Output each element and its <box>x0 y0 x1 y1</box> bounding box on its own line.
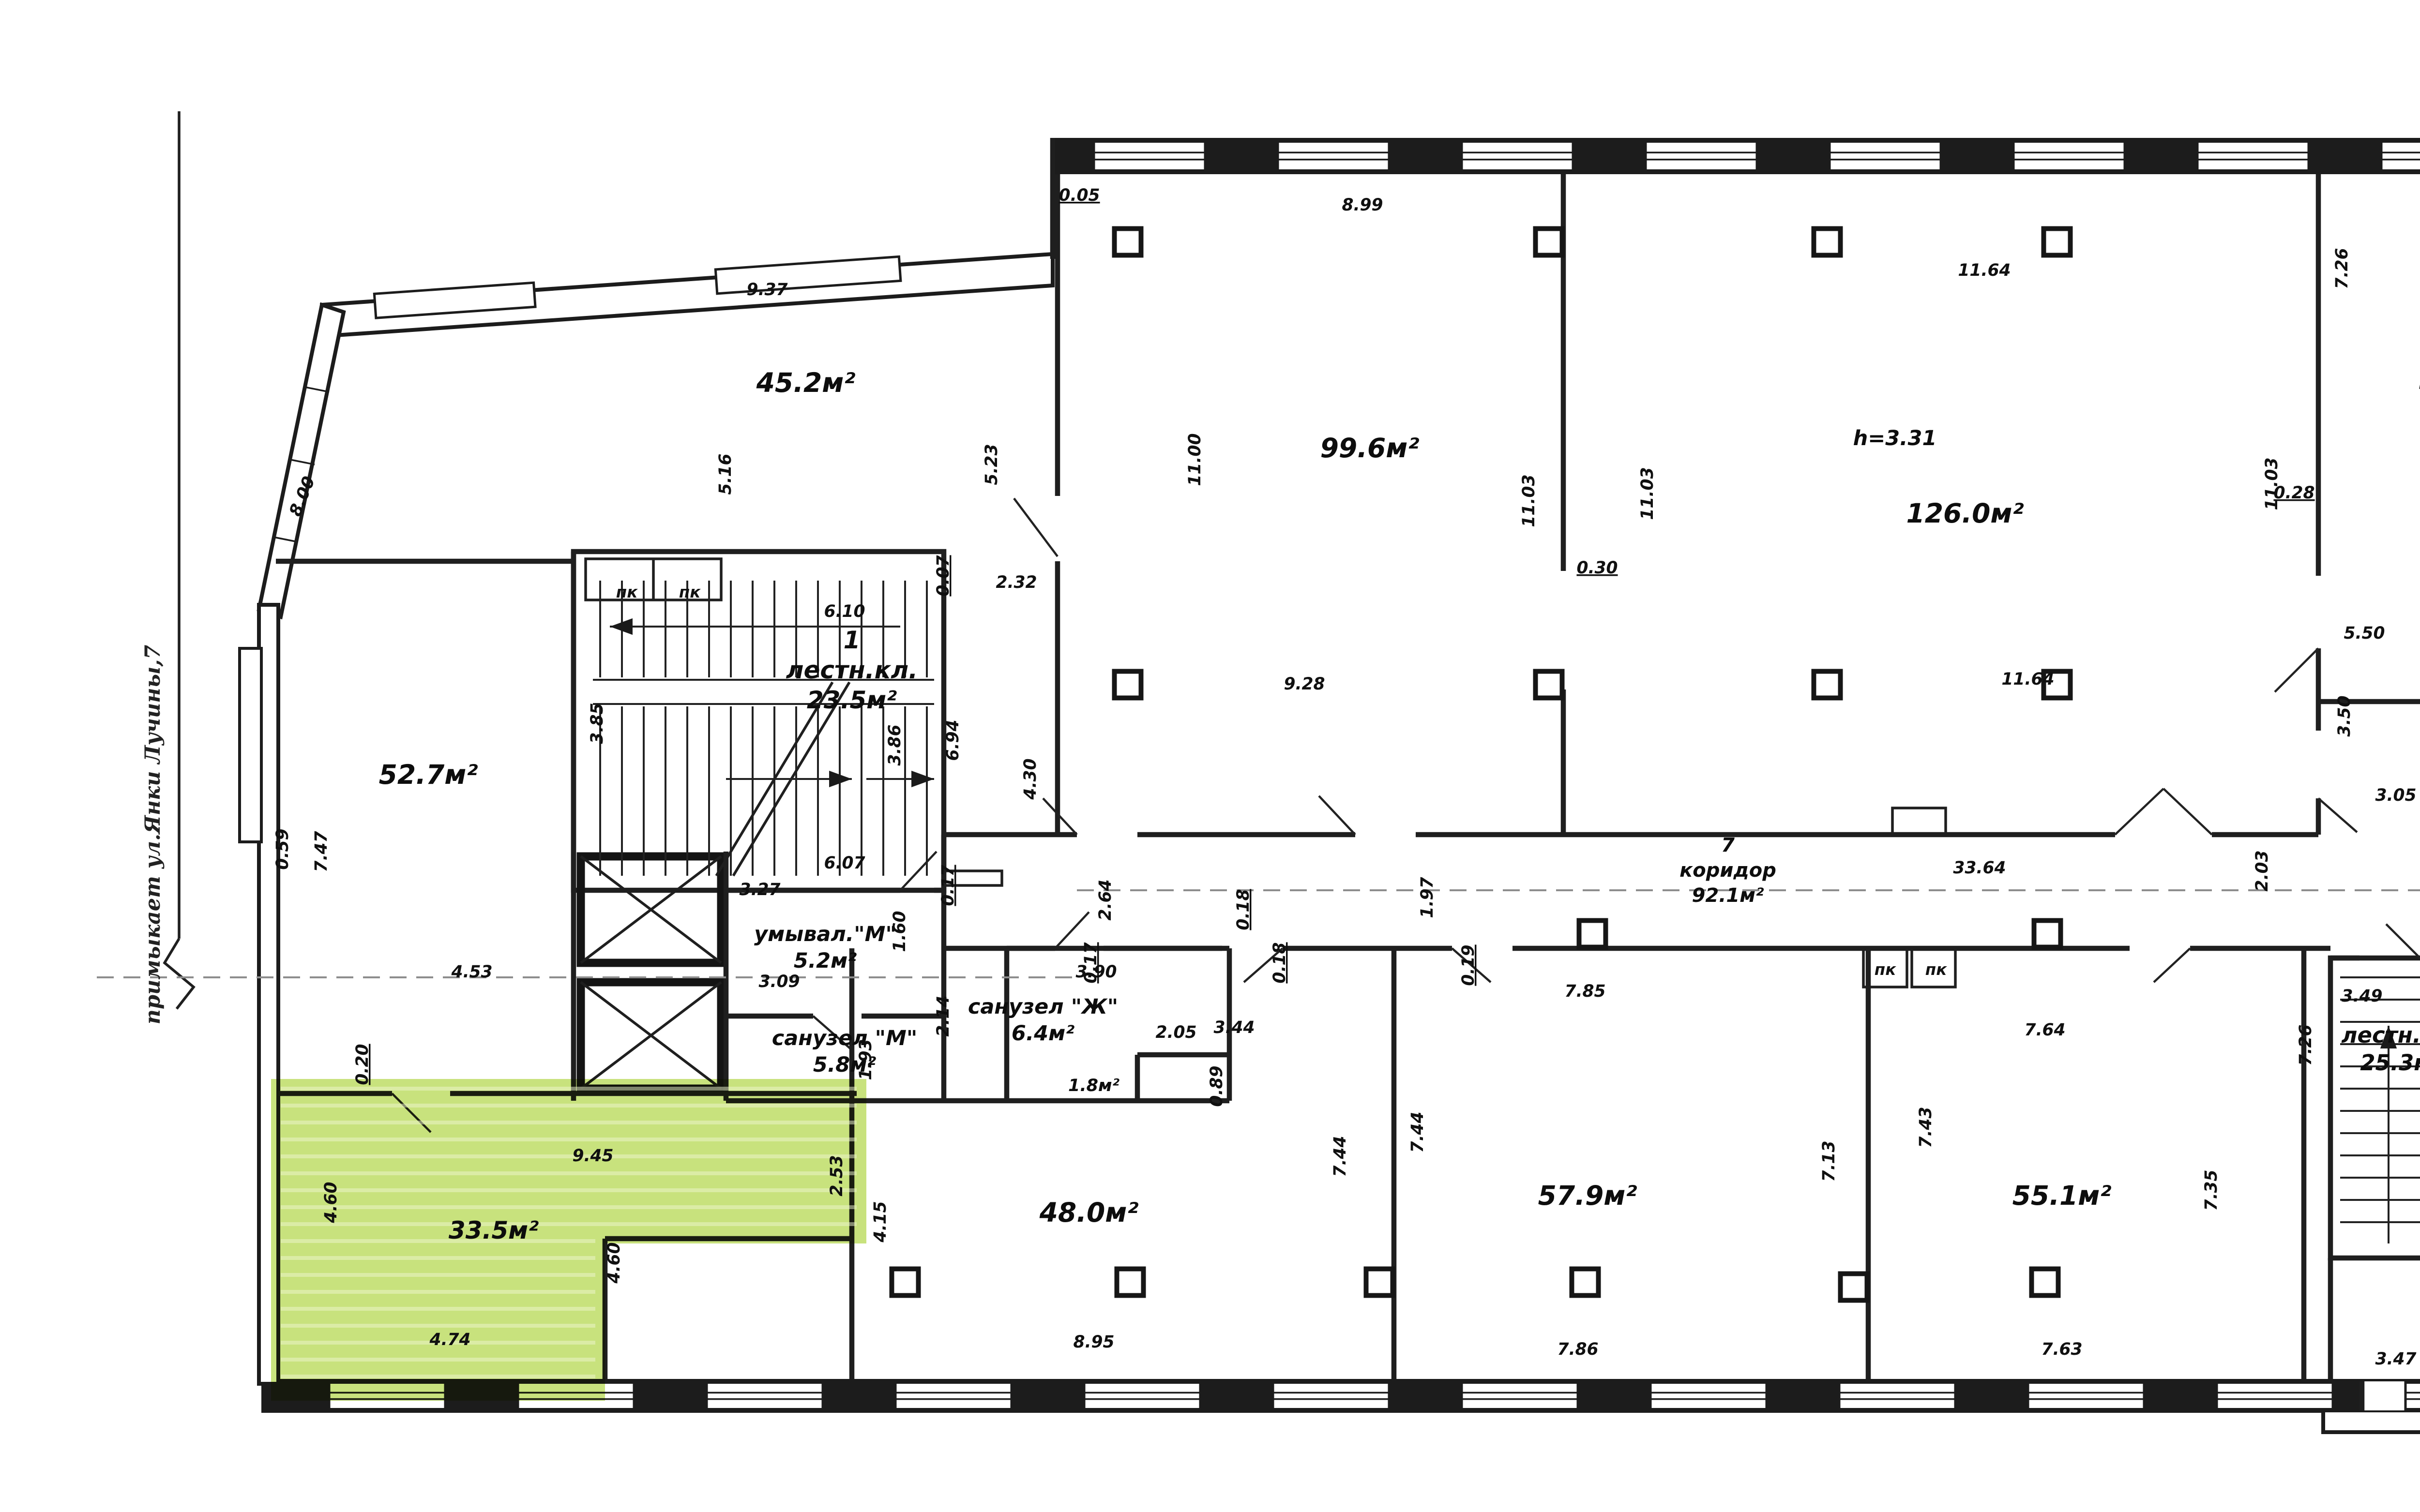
room-label: 48.0м² <box>1039 1197 1139 1228</box>
dim-label: 3.47 <box>2375 1349 2416 1369</box>
column <box>1536 672 1562 698</box>
dim-label: 1.97 <box>1418 877 1437 918</box>
column <box>1366 1269 1393 1296</box>
fire-cabinet-label: пк <box>1925 960 1947 979</box>
dim-label: 9.37 <box>746 280 787 299</box>
dim-label: 3.86 <box>885 724 905 765</box>
window <box>2405 1383 2420 1409</box>
column <box>2034 921 2061 947</box>
dim-label: 5.23 <box>982 444 1001 485</box>
column <box>1117 1269 1144 1296</box>
dim-label: 0.07 <box>934 555 953 596</box>
dim-label: 2.64 <box>1096 879 1115 920</box>
dim-label: 3.05 <box>2375 786 2416 805</box>
dim-label: 3.27 <box>739 880 780 899</box>
dim-label: 5.50 <box>2344 624 2385 643</box>
dim-label: 0.18 <box>1234 889 1253 930</box>
dim-label: 3.44 <box>1213 1018 1255 1037</box>
dim-label: 0.18 <box>1270 942 1289 983</box>
fire-cabinet-label: пк <box>1875 960 1896 979</box>
room-label: 45.2м² <box>756 367 856 398</box>
dim-label: 7.44 <box>1408 1111 1427 1153</box>
room-label: h=3.31 <box>1853 426 1937 450</box>
dim-label: 7.85 <box>1564 982 1605 1001</box>
column <box>1115 229 1141 255</box>
dim-label: 0.17 <box>938 865 958 906</box>
dim-label: 2.05 <box>1155 1023 1196 1042</box>
dim-label: 0.89 <box>1207 1065 1226 1107</box>
column <box>1814 672 1841 698</box>
dim-label: 11.03 <box>1638 467 1657 520</box>
window <box>1830 142 1941 171</box>
dim-label: 6.07 <box>824 853 865 873</box>
dim-label: 0.28 <box>2273 483 2314 503</box>
room-label: 52.7м² <box>379 759 478 790</box>
dim-label: 7.63 <box>2041 1340 2082 1359</box>
window <box>895 1383 1012 1409</box>
room-label: 55.1м² <box>2012 1180 2112 1211</box>
column <box>1841 1274 1867 1301</box>
dim-label: 7.35 <box>2202 1169 2221 1211</box>
window <box>1084 1383 1200 1409</box>
room-label: умывал."М" <box>754 922 896 946</box>
dim-label: 7.44 <box>1331 1136 1350 1177</box>
dim-label: 9.28 <box>1284 674 1325 694</box>
dim-label: 3.85 <box>588 703 607 744</box>
dim-label: 5.16 <box>716 453 735 494</box>
dim-label: 3.09 <box>758 972 800 991</box>
room-label: 6.4м² <box>1012 1021 1074 1046</box>
dim-label: 33.64 <box>1953 858 2006 878</box>
dim-label: 11.64 <box>2001 670 2054 689</box>
room-label: 1 <box>844 626 861 654</box>
dim-label: 7.64 <box>2024 1020 2065 1040</box>
dim-label: 11.64 <box>1958 261 2011 280</box>
dim-label: 4.30 <box>1021 758 1040 800</box>
dim-label: 2.03 <box>2253 850 2272 891</box>
dim-label: 0.19 <box>1459 944 1478 986</box>
column <box>1115 672 1141 698</box>
dim-label: 0.17 <box>1081 942 1101 983</box>
dim-label: 4.15 <box>871 1201 890 1243</box>
column <box>892 1269 919 1296</box>
dim-label: 9.45 <box>572 1146 613 1166</box>
dim-label: 7.26 <box>2296 1024 2315 1065</box>
dim-label: 2.53 <box>827 1155 847 1196</box>
room-label: санузел "М" <box>772 1026 917 1050</box>
window <box>2013 142 2125 171</box>
window <box>1839 1383 1955 1409</box>
dim-label: 7.86 <box>1557 1340 1598 1359</box>
room-label: 25.3м² <box>2360 1050 2420 1076</box>
column <box>1536 229 1562 255</box>
room-label: 23.5м² <box>807 686 897 714</box>
dim-label: 8.95 <box>1073 1332 1114 1352</box>
window <box>1278 142 1389 171</box>
room-label: 92.1м² <box>1692 884 1764 907</box>
column <box>1814 229 1841 255</box>
dim-label: 3.50 <box>2335 695 2354 736</box>
fire-cabinet-label: пк <box>679 583 701 601</box>
dim-label: 4.74 <box>429 1330 470 1349</box>
dim-label: 2.14 <box>934 995 953 1036</box>
window <box>1462 1383 1578 1409</box>
room-label: 5.2м² <box>794 949 857 973</box>
dim-label: 0.30 <box>1576 558 1618 578</box>
window <box>2197 142 2309 171</box>
dim-label: 0.59 <box>273 828 292 869</box>
window <box>2381 142 2420 171</box>
window <box>1273 1383 1389 1409</box>
dim-label: 4.53 <box>451 962 492 982</box>
window <box>1650 1383 1767 1409</box>
dim-label: 6.10 <box>824 602 865 621</box>
dim-label: 11.03 <box>1519 474 1539 527</box>
dim-label: 7.43 <box>1916 1107 1936 1148</box>
window <box>1094 142 1205 171</box>
window <box>707 1383 823 1409</box>
street-note: примыкает ул.Янки Лучины,7 <box>141 645 165 1025</box>
column <box>2032 1269 2058 1296</box>
dim-label: 7.26 <box>2332 248 2352 289</box>
dim-label: 3.49 <box>2341 987 2382 1006</box>
floor-plan: 9.375.165.238.000.050.072.326.103.853.86… <box>0 0 2420 1512</box>
window <box>1462 142 1573 171</box>
window <box>2217 1383 2333 1409</box>
column <box>1572 1269 1599 1296</box>
dim-label: 4.60 <box>321 1182 341 1223</box>
dim-label: 2.32 <box>996 573 1037 592</box>
room-label: 5.8м² <box>813 1053 876 1077</box>
room-label: лестн.кл. <box>786 656 918 684</box>
dim-label: 0.20 <box>353 1044 372 1085</box>
dim-label: 6.94 <box>943 719 963 761</box>
room-label: 1.8м² <box>1068 1076 1120 1095</box>
room-label: 33.5м² <box>449 1216 539 1244</box>
window <box>2028 1383 2144 1409</box>
room-label: санузел "Ж" <box>968 995 1118 1019</box>
dim-label: 8.99 <box>1342 195 1383 215</box>
dim-label: 11.00 <box>1185 433 1205 486</box>
room-label: 7 <box>1721 834 1735 856</box>
window <box>1646 142 1757 171</box>
room-label: 126.0м² <box>1906 498 2024 529</box>
column <box>1579 921 1606 947</box>
column <box>2044 229 2071 255</box>
dim-label: 7.47 <box>312 831 331 872</box>
dim-label: 0.05 <box>1059 186 1100 205</box>
room-label: коридор <box>1679 859 1776 882</box>
dim-label: 4.60 <box>605 1242 624 1284</box>
fire-cabinet-label: пк <box>616 583 638 601</box>
dim-label: 7.13 <box>1819 1140 1839 1182</box>
room-label: 57.9м² <box>1538 1180 1637 1211</box>
room-label: лестн.кл. <box>2341 1022 2420 1048</box>
room-label: 99.6м² <box>1320 433 1420 464</box>
